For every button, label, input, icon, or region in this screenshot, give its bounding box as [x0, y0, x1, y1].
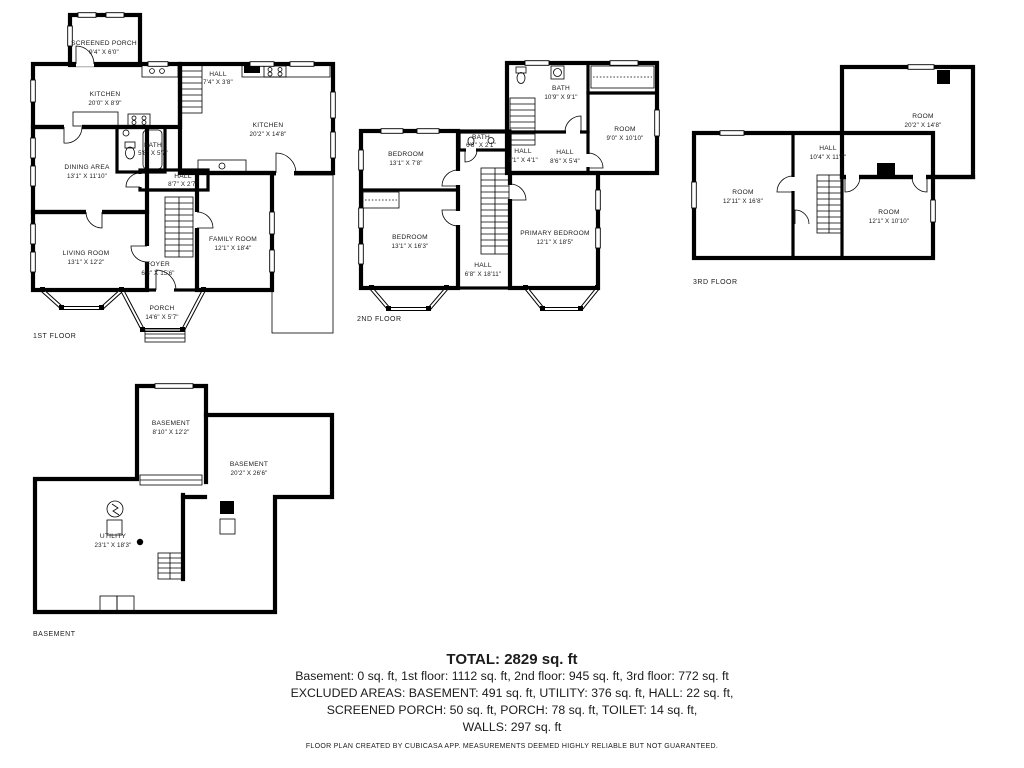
room-dims: 12'1" X 18'4": [215, 245, 252, 252]
room-dims: 12'1" X 10'10": [869, 218, 910, 225]
first-floor-plan: SCREENED PORCH 9'4" X 6'0" KITCHEN 20'0"…: [30, 12, 352, 352]
excluded-areas-1: EXCLUDED AREAS: BASEMENT: 491 sq. ft, UT…: [0, 685, 1024, 702]
room-dims: 23'1" X 18'3": [95, 542, 132, 549]
opening: [140, 475, 202, 485]
floor-label-2nd: 2ND FLOOR: [357, 316, 402, 323]
floor-label-1st: 1ST FLOOR: [33, 333, 76, 340]
room-dims: 7'4" X 3'8": [203, 79, 233, 86]
room-name: ROOM: [732, 189, 754, 196]
room-dims: 8'6" X 5'4": [550, 158, 580, 165]
room-name: HALL: [556, 149, 574, 156]
room-name: PORCH: [149, 305, 174, 312]
room-dims: 10'9" X 9'1": [544, 94, 577, 101]
room-name: ROOM: [878, 209, 900, 216]
room-name: DINING AREA: [64, 164, 110, 171]
room-dims: 20'2" X 26'6": [231, 470, 268, 477]
kitchen-fixtures-icon: [73, 64, 330, 172]
room-name: BATH: [144, 142, 162, 149]
room-dims: 20'2" X 14'8": [250, 131, 287, 138]
third-floor-plan: ROOM 20'2" X 14'8" HALL 10'4" X 11'7" RO…: [690, 62, 982, 292]
room-name: UTILITY: [100, 533, 127, 540]
room-name: FAMILY ROOM: [209, 236, 257, 243]
room-name: HALL: [514, 148, 532, 155]
basement-plan: BASEMENT 8'10" X 12'2" BASEMENT 20'2" X …: [28, 382, 343, 647]
room-name: HALL: [174, 173, 192, 180]
room-dims: 13'1" X 7'8": [389, 160, 422, 167]
room-name: KITCHEN: [90, 91, 121, 98]
room-name: FOYER: [146, 261, 170, 268]
room-name: ROOM: [912, 113, 934, 120]
room-dims: 13'1" X 11'10": [67, 173, 107, 180]
floor-label-basement: BASEMENT: [33, 631, 76, 638]
room-dims: 6'8" X 18'11": [465, 271, 501, 278]
room-dims: 8'10" X 12'2": [153, 429, 190, 436]
room-name: LIVING ROOM: [63, 250, 110, 257]
room-dims: 9'4" X 6'0": [89, 49, 119, 56]
total-area: TOTAL: 2829 sq. ft: [0, 651, 1024, 668]
room-dims: 13'1" X 12'2": [68, 259, 105, 266]
disclaimer: FLOOR PLAN CREATED BY CUBICASA APP. MEAS…: [0, 743, 1024, 750]
utility-fixtures-icon: [100, 501, 235, 611]
room-dims: 6'8" X 15'6": [141, 270, 174, 277]
room-name: BATH: [472, 134, 490, 141]
room-dims: 12'1" X 18'5": [537, 239, 574, 246]
room-labels: SCREENED PORCH 9'4" X 6'0" KITCHEN 20'0"…: [63, 40, 287, 321]
room-name: HALL: [474, 262, 492, 269]
floor-areas: Basement: 0 sq. ft, 1st floor: 1112 sq. …: [0, 668, 1024, 685]
room-name: BEDROOM: [388, 151, 424, 158]
windows: [155, 384, 193, 389]
room-labels: BATH 10'9" X 9'1" ROOM 9'0" X 10'10" BED…: [388, 85, 643, 278]
room-dims: 10'4" X 11'7": [810, 154, 846, 161]
room-name: SCREENED PORCH: [71, 40, 137, 47]
room-dims: 9'0" X 10'10": [607, 135, 644, 142]
room-dims: 13'1" X 16'3": [392, 243, 429, 250]
room-name: HALL: [209, 71, 227, 78]
room-name: BATH: [552, 85, 570, 92]
room-dims: 6'8" X 2'1": [466, 142, 496, 149]
room-labels: ROOM 20'2" X 14'8" HALL 10'4" X 11'7" RO…: [723, 113, 941, 225]
door-openings: [777, 176, 927, 224]
room-dims: 20'0" X 8'9": [88, 100, 121, 107]
room-name: HALL: [819, 145, 837, 152]
room-name: BEDROOM: [392, 234, 428, 241]
bay-windows: [40, 287, 206, 332]
room-dims: 20'2" X 14'8": [905, 122, 942, 129]
room-dims: 3'1" X 4'1": [508, 157, 538, 164]
room-name: ROOM: [614, 126, 636, 133]
room-name: PRIMARY BEDROOM: [520, 230, 589, 237]
room-name: KITCHEN: [253, 122, 284, 129]
second-floor-plan: BATH 10'9" X 9'1" ROOM 9'0" X 10'10" BED…: [355, 58, 670, 328]
room-name: BASEMENT: [152, 420, 190, 427]
area-summary: TOTAL: 2829 sq. ft Basement: 0 sq. ft, 1…: [0, 651, 1024, 736]
floor-plan-page: SCREENED PORCH 9'4" X 6'0" KITCHEN 20'0"…: [0, 0, 1024, 768]
room-dims: 5'8" X 5'7": [138, 150, 168, 157]
stairs-icon: [158, 553, 182, 579]
room-dims: 12'11" X 16'8": [723, 198, 763, 205]
floor-label-3rd: 3RD FLOOR: [693, 279, 738, 286]
room-dims: 8'7" X 2'7": [168, 181, 198, 188]
room-dims: 14'6" X 5'7": [145, 314, 178, 321]
excluded-areas-2: SCREENED PORCH: 50 sq. ft, PORCH: 78 sq.…: [0, 702, 1024, 719]
room-name: BASEMENT: [230, 461, 268, 468]
excluded-areas-3: WALLS: 297 sq. ft: [0, 719, 1024, 736]
stairs-icon: [817, 175, 841, 233]
